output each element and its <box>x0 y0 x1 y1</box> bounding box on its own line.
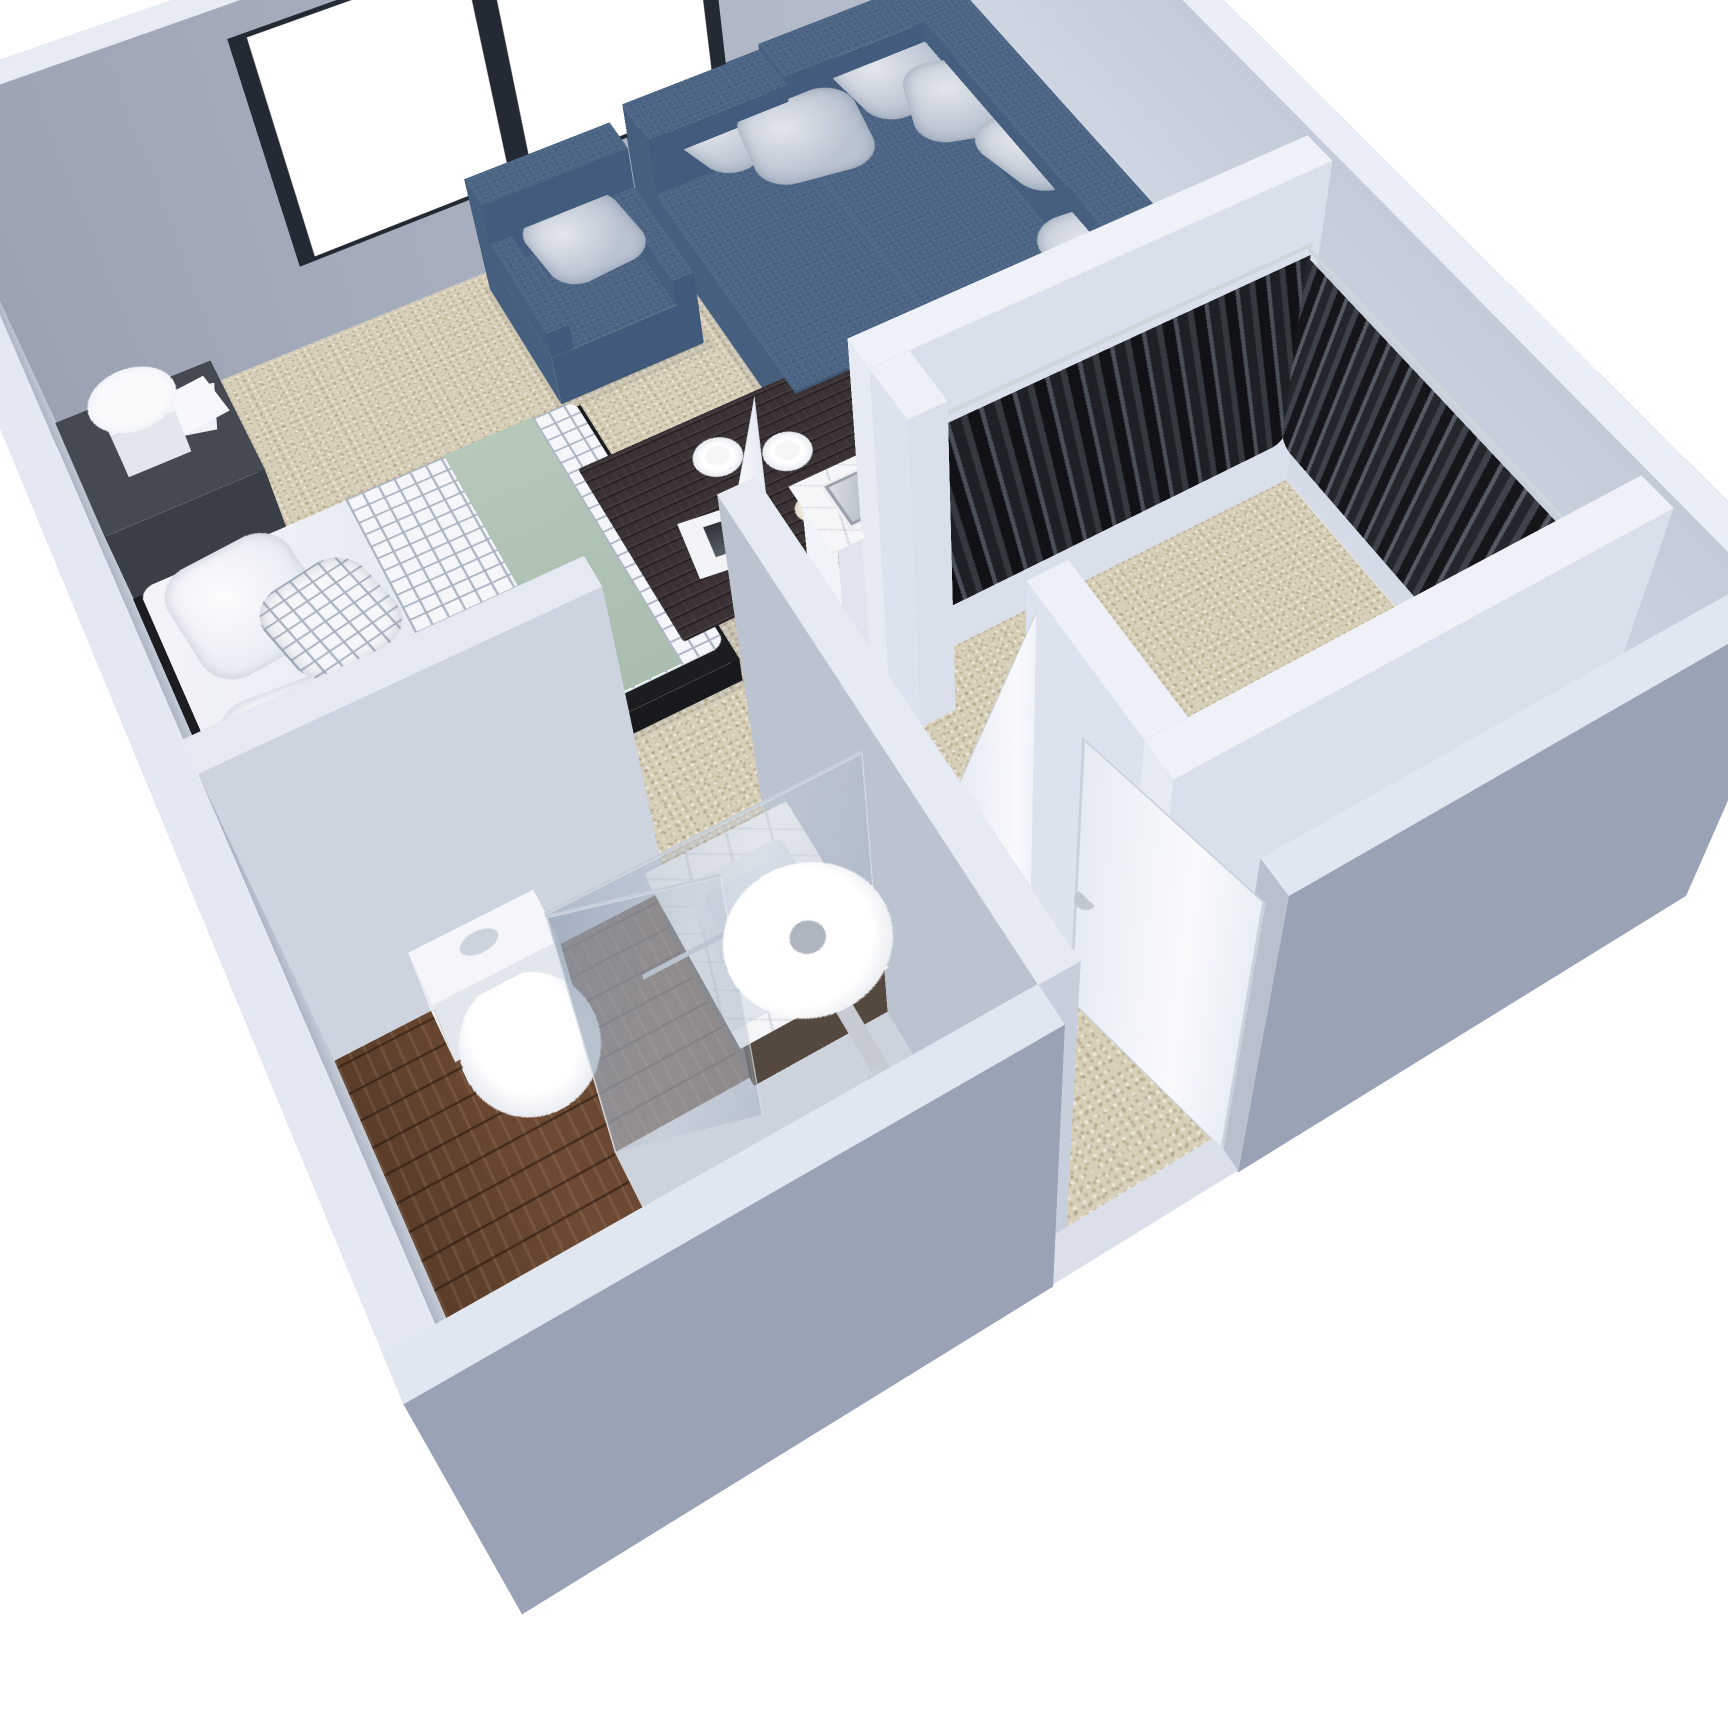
camera <box>0 0 1728 1720</box>
floorplan-3d-render <box>0 0 1728 1720</box>
